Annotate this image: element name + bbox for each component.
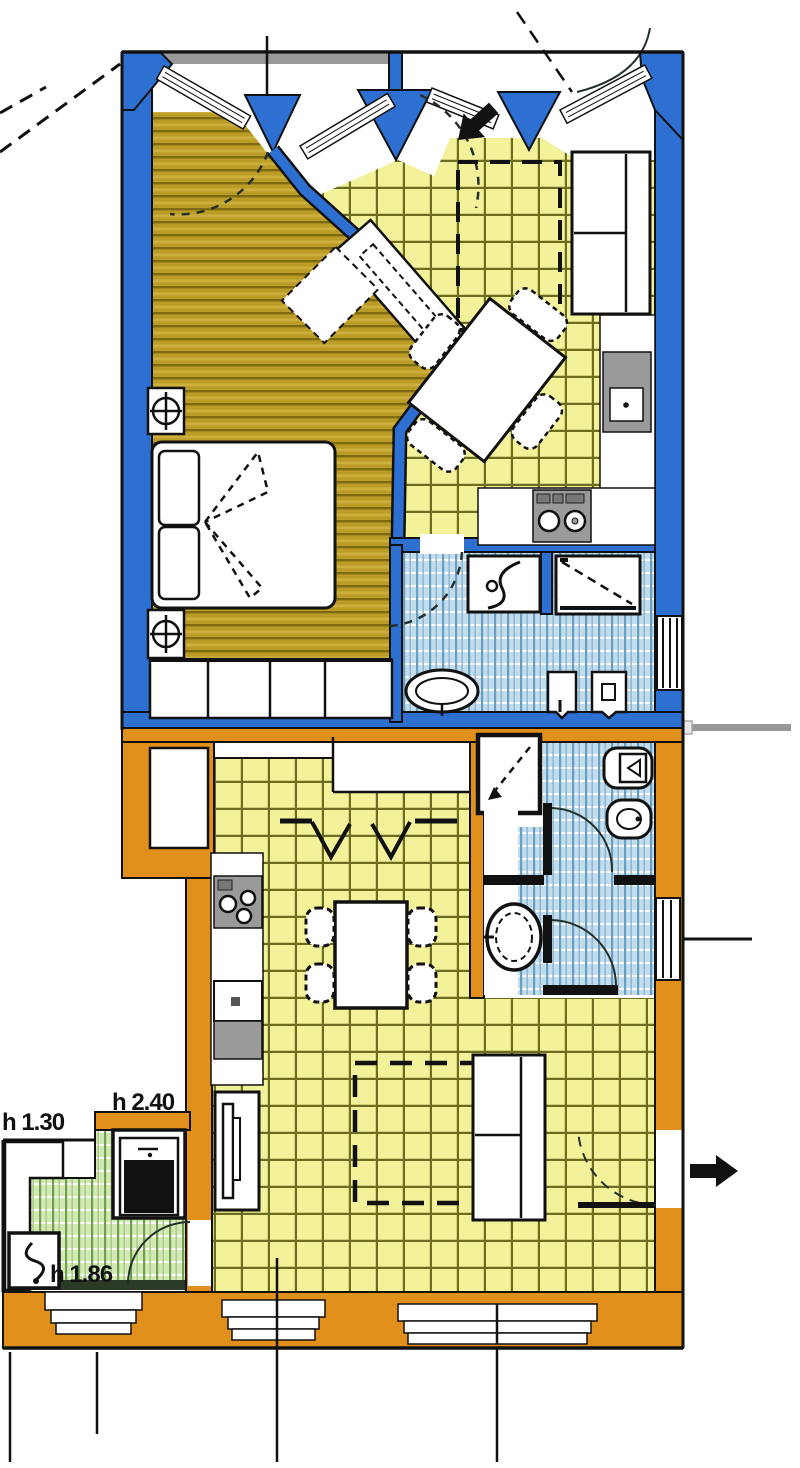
upper-bathroom-door-gap bbox=[420, 534, 464, 554]
top-gray-band bbox=[155, 54, 395, 64]
window-sill-2 bbox=[222, 1300, 325, 1340]
upper-bathroom-divider bbox=[541, 552, 552, 614]
double-bed bbox=[152, 442, 335, 608]
window-sill-3 bbox=[398, 1304, 597, 1344]
lower-kitchen bbox=[211, 853, 263, 1210]
wall-stub-4 bbox=[543, 915, 552, 963]
wall-stub-3 bbox=[614, 875, 655, 885]
washbasin-lower bbox=[484, 904, 541, 970]
lower-apartment-floors bbox=[5, 733, 655, 1292]
window-sill-1 bbox=[45, 1292, 142, 1334]
height-label-bottom: h 1.86 bbox=[50, 1261, 113, 1288]
dining-table-lower bbox=[335, 902, 407, 1008]
tall-cabinet bbox=[215, 1092, 259, 1210]
washbasin-upper bbox=[468, 556, 540, 612]
storage-room bbox=[150, 748, 208, 848]
shower-upper bbox=[556, 556, 640, 614]
burner bbox=[220, 896, 236, 912]
balcony-door-gap bbox=[188, 1220, 211, 1286]
wall-stub-1 bbox=[543, 803, 552, 875]
sofa-lower bbox=[473, 1055, 545, 1220]
height-label-left: h 1.30 bbox=[2, 1109, 65, 1136]
burner bbox=[539, 511, 559, 531]
upper-right-window bbox=[657, 616, 682, 690]
sink-drain bbox=[623, 402, 629, 408]
wardrobe bbox=[150, 660, 392, 718]
boiler-alcove bbox=[113, 1130, 185, 1218]
wall-stub-5 bbox=[543, 985, 618, 995]
stove-upper bbox=[533, 490, 591, 542]
entrance-door-gap bbox=[656, 1130, 684, 1208]
pillow-1 bbox=[159, 451, 199, 525]
sink-lower bbox=[214, 981, 262, 1021]
right-gray-connector bbox=[683, 724, 791, 731]
dormer-window-strip-4 bbox=[560, 65, 652, 123]
bidet-lower bbox=[607, 800, 651, 838]
chair bbox=[306, 964, 334, 1002]
lower-top-wall bbox=[122, 728, 683, 742]
sofa-upper bbox=[572, 152, 650, 314]
pillow-2 bbox=[159, 527, 199, 599]
burner bbox=[241, 891, 255, 905]
toilet-upper bbox=[548, 672, 576, 718]
lower-right-window bbox=[656, 898, 680, 980]
toilet-lower bbox=[604, 748, 652, 788]
floor-plan: h 1.30 h 2.40 h 1.86 bbox=[0, 0, 800, 1468]
chair bbox=[408, 964, 436, 1002]
lower-right-wall bbox=[655, 742, 683, 1348]
floor-plan-page: h 1.30 h 2.40 h 1.86 bbox=[0, 0, 800, 1468]
boiler-icon bbox=[124, 1160, 174, 1213]
roof-edge-dashed-1 bbox=[0, 64, 120, 152]
stove-lower bbox=[214, 876, 262, 928]
chair bbox=[306, 908, 334, 946]
kitchen-unit-gray bbox=[214, 1021, 262, 1059]
roof-edge-dashed-2 bbox=[0, 87, 46, 113]
height-label-center: h 2.40 bbox=[112, 1089, 175, 1116]
burner bbox=[237, 909, 251, 923]
lower-entrance-arrow-icon bbox=[690, 1155, 738, 1187]
bay-chevron-b bbox=[358, 90, 432, 160]
chair bbox=[408, 908, 436, 946]
bidet-upper bbox=[592, 672, 626, 718]
wall-stub-2 bbox=[484, 875, 544, 885]
